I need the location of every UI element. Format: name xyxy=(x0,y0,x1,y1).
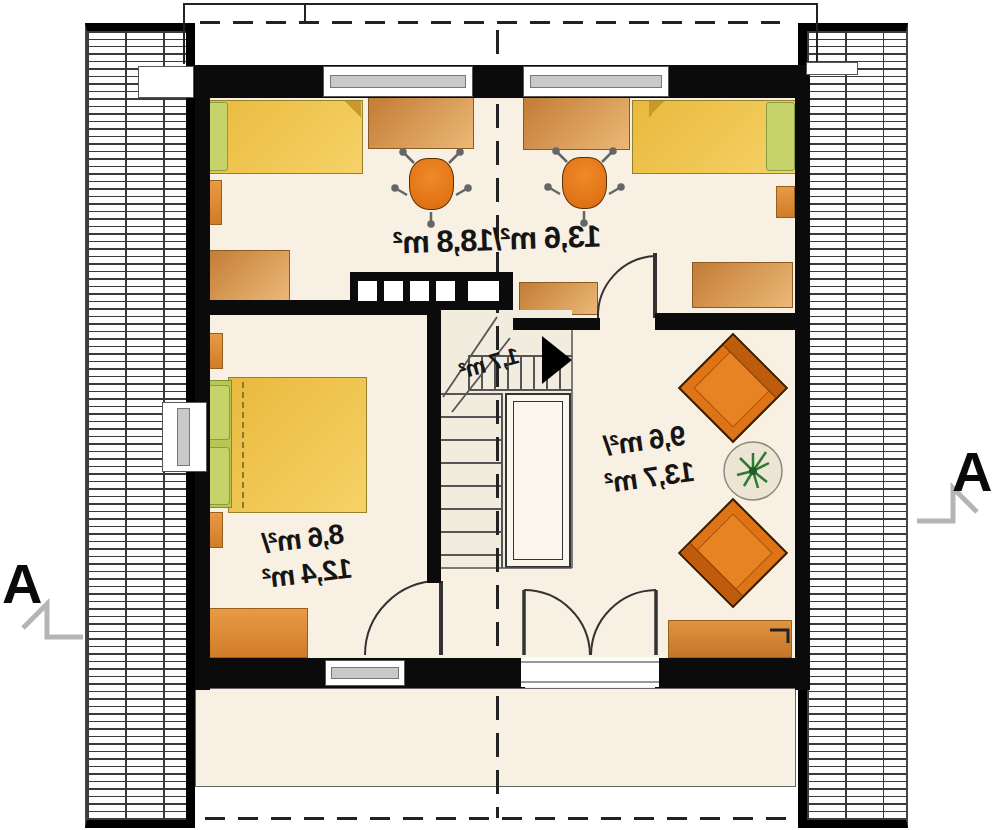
chimney-flue-3 xyxy=(410,281,429,301)
roof-notch-top-right xyxy=(806,62,858,75)
window-top-right xyxy=(523,66,669,97)
office-chair-legs xyxy=(393,149,624,227)
window-left-wall xyxy=(162,402,207,472)
wall-top xyxy=(195,65,810,98)
wall-divider-right xyxy=(655,313,798,330)
french-door-leaves xyxy=(524,590,656,655)
door-bedroom xyxy=(365,581,441,655)
chimney-flue-4 xyxy=(436,281,455,301)
chimney-flue-1 xyxy=(358,281,377,301)
window-sash xyxy=(177,408,190,466)
wall-right xyxy=(795,65,810,690)
window-top-left xyxy=(323,66,473,97)
door-sill-line xyxy=(521,681,659,683)
section-marker-right: A xyxy=(952,444,992,500)
wall-bottom-right xyxy=(655,658,810,688)
eaves-dashed-line-top xyxy=(200,21,780,24)
sideboard-handle-mark xyxy=(770,630,788,643)
wall-stairwell xyxy=(427,307,441,583)
door-kids-room xyxy=(598,253,655,318)
line-overlay xyxy=(0,0,1000,830)
window-bottom xyxy=(325,660,405,686)
roof-window-top-left xyxy=(138,66,194,98)
round-table-with-plant xyxy=(724,442,782,500)
window-sash xyxy=(331,667,399,679)
wall-left xyxy=(195,65,210,690)
plant-center xyxy=(749,467,757,475)
section-marker-left: A xyxy=(2,556,42,612)
floor-plan-canvas: 13,6 m²/18,8 m² 1,7 m² 9,6 m²/ 13,7 m² 8… xyxy=(0,0,1000,830)
door-sill-line xyxy=(521,661,659,663)
chimney-flue-5 xyxy=(468,281,499,301)
chimney-flue-2 xyxy=(384,281,403,301)
window-sash xyxy=(530,75,662,88)
ridge-center-dashed-line xyxy=(496,30,499,818)
eaves-dashed-line-bottom xyxy=(205,817,795,820)
window-sash xyxy=(330,75,466,88)
french-door-opening xyxy=(521,657,659,687)
wall-divider-mid xyxy=(513,318,600,330)
